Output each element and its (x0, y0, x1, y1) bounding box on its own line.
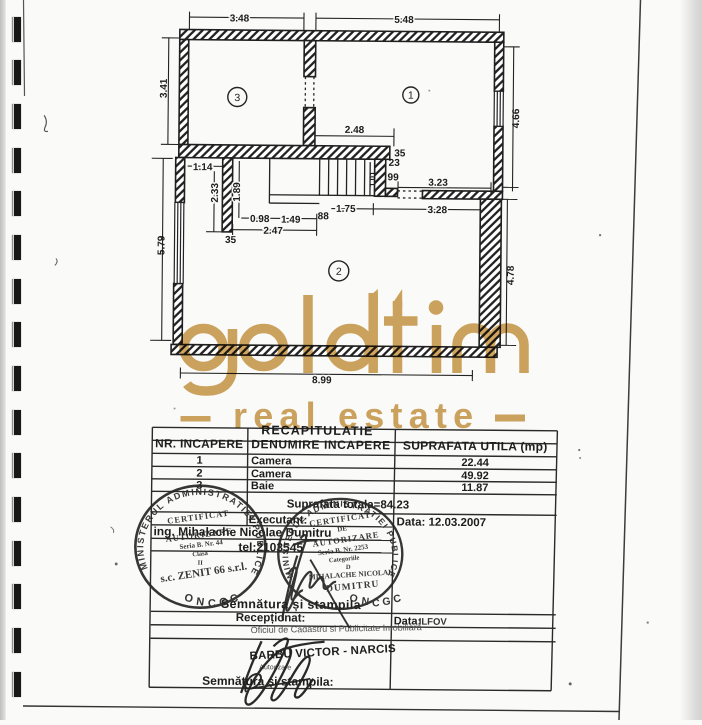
svg-text:real estate: real estate (233, 395, 479, 436)
